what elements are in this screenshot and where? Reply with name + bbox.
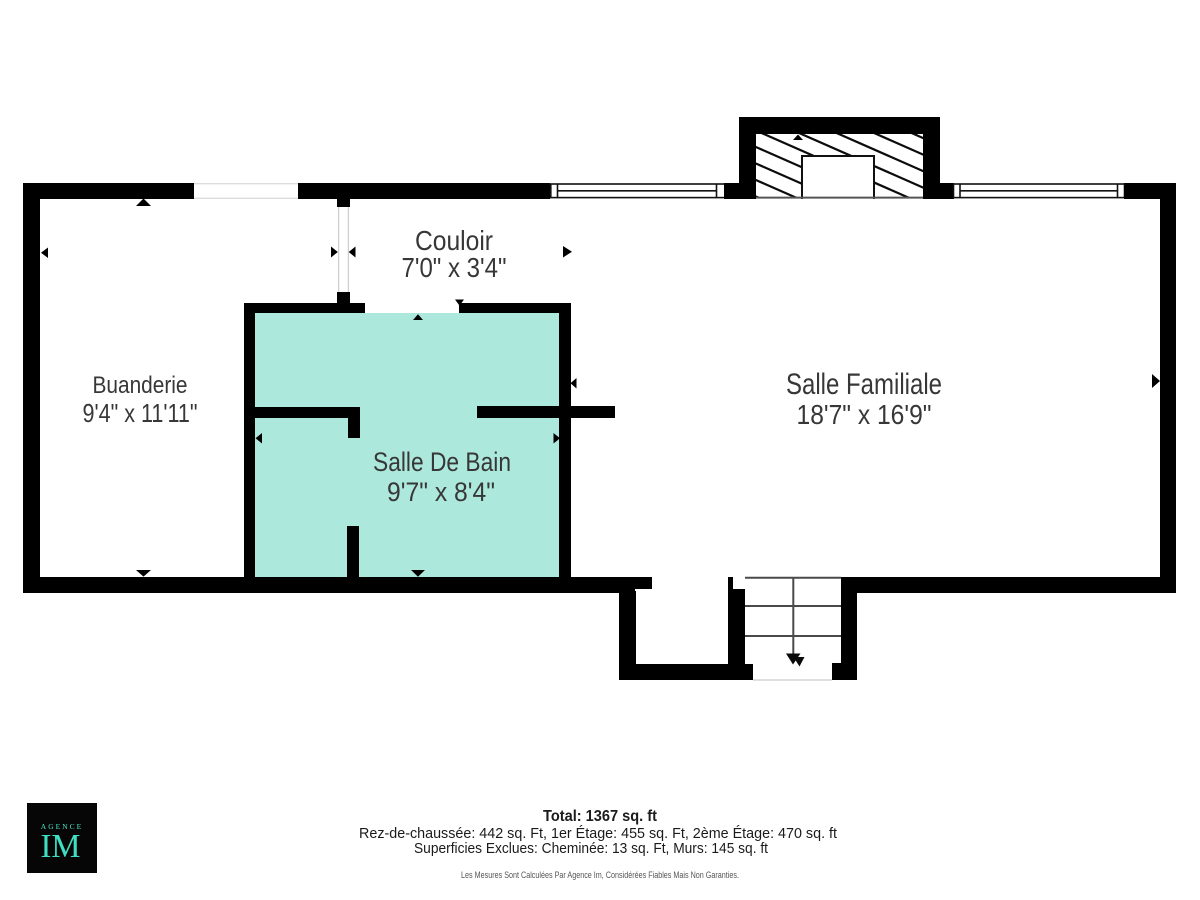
svg-text:9'4" x 11'11": 9'4" x 11'11" xyxy=(83,398,198,428)
svg-text:Salle Familiale: Salle Familiale xyxy=(786,368,942,401)
svg-text:18'7" x 16'9": 18'7" x 16'9" xyxy=(797,399,932,430)
svg-text:Rez-de-chaussée: 442 sq. Ft, 1: Rez-de-chaussée: 442 sq. Ft, 1er Étage: … xyxy=(359,825,837,842)
svg-text:Les Mesures Sont Calculées Par: Les Mesures Sont Calculées Par Agence Im… xyxy=(461,870,739,880)
svg-text:Buanderie: Buanderie xyxy=(93,372,188,399)
svg-text:Total: 1367 sq. ft: Total: 1367 sq. ft xyxy=(543,808,658,825)
svg-text:7'0" x 3'4": 7'0" x 3'4" xyxy=(402,252,507,283)
svg-text:9'7" x 8'4": 9'7" x 8'4" xyxy=(387,477,495,507)
svg-text:Salle De Bain: Salle De Bain xyxy=(373,447,511,477)
svg-text:IM: IM xyxy=(41,828,81,865)
svg-text:Superficies Exclues: Cheminée:: Superficies Exclues: Cheminée: 13 sq. Ft… xyxy=(414,841,768,857)
